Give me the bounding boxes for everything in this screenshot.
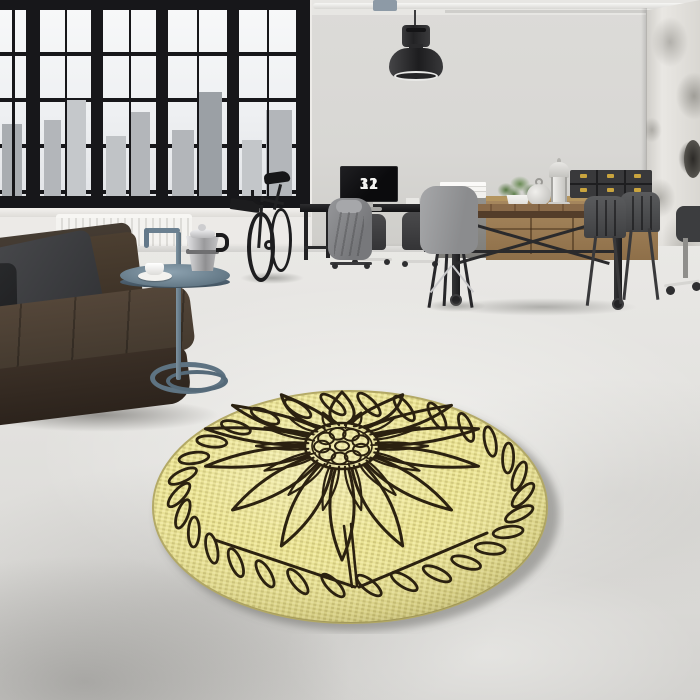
metal-chair <box>620 192 660 232</box>
bike-crank <box>264 240 274 250</box>
moka-pot-top <box>186 236 219 250</box>
gray-shell-chair <box>420 186 478 254</box>
moka-pot-body <box>188 252 217 271</box>
side-table-handle-end <box>144 228 149 248</box>
hoodie-on-chair <box>328 198 372 260</box>
lamp-opening <box>394 71 438 81</box>
monitor-clock: 11 32 <box>340 166 398 202</box>
city-building <box>172 130 194 196</box>
trunk-latch <box>580 174 587 178</box>
window-pane <box>0 10 26 196</box>
pipe-junction <box>373 0 397 11</box>
lantern-dome <box>549 162 569 178</box>
office-chair-column <box>683 238 688 278</box>
city-building <box>131 112 150 196</box>
window-pane <box>40 10 91 196</box>
caster-wheel <box>666 286 675 295</box>
side-table-handle <box>146 228 180 233</box>
city-building <box>106 136 126 196</box>
moka-pot-handle <box>216 233 229 252</box>
bike-shadow <box>240 272 304 284</box>
clock-body <box>527 184 551 206</box>
side-table-tray <box>120 264 230 287</box>
ceiling <box>295 0 700 15</box>
caster-wheel <box>384 259 390 265</box>
caster-wheel <box>364 263 370 269</box>
decor-lantern <box>548 158 570 208</box>
chair-shadow <box>424 300 486 312</box>
window-pane <box>103 10 156 196</box>
trunk-latch <box>580 188 587 192</box>
city-building <box>66 100 86 196</box>
metal-chair <box>584 196 626 238</box>
leather-sofa <box>0 214 216 436</box>
side-table-pole <box>176 232 181 380</box>
lantern-body <box>551 177 567 203</box>
window-pane <box>168 10 227 196</box>
room-scene: 11 32 <box>0 0 700 700</box>
trunk-latch <box>607 188 614 192</box>
city-building <box>198 92 222 196</box>
trunk-latch <box>634 174 641 178</box>
caster-wheel <box>332 263 338 269</box>
trunk-latch <box>607 174 614 178</box>
desk-stretcher <box>304 246 328 249</box>
city-building <box>44 120 61 196</box>
trunk-latch <box>634 188 641 192</box>
window-pane <box>239 10 296 196</box>
coffee-cup <box>145 263 164 275</box>
caster-wheel <box>402 261 408 267</box>
city-building <box>242 140 262 196</box>
city-building <box>2 124 22 196</box>
desk-leg <box>304 212 308 260</box>
caster-wheel <box>692 282 700 291</box>
office-chair-right <box>676 206 700 242</box>
moka-pot-knob <box>198 224 206 231</box>
clock-minutes: 32 <box>359 177 378 192</box>
desk-item-white <box>406 198 419 204</box>
wall-dark-patch <box>684 140 700 178</box>
